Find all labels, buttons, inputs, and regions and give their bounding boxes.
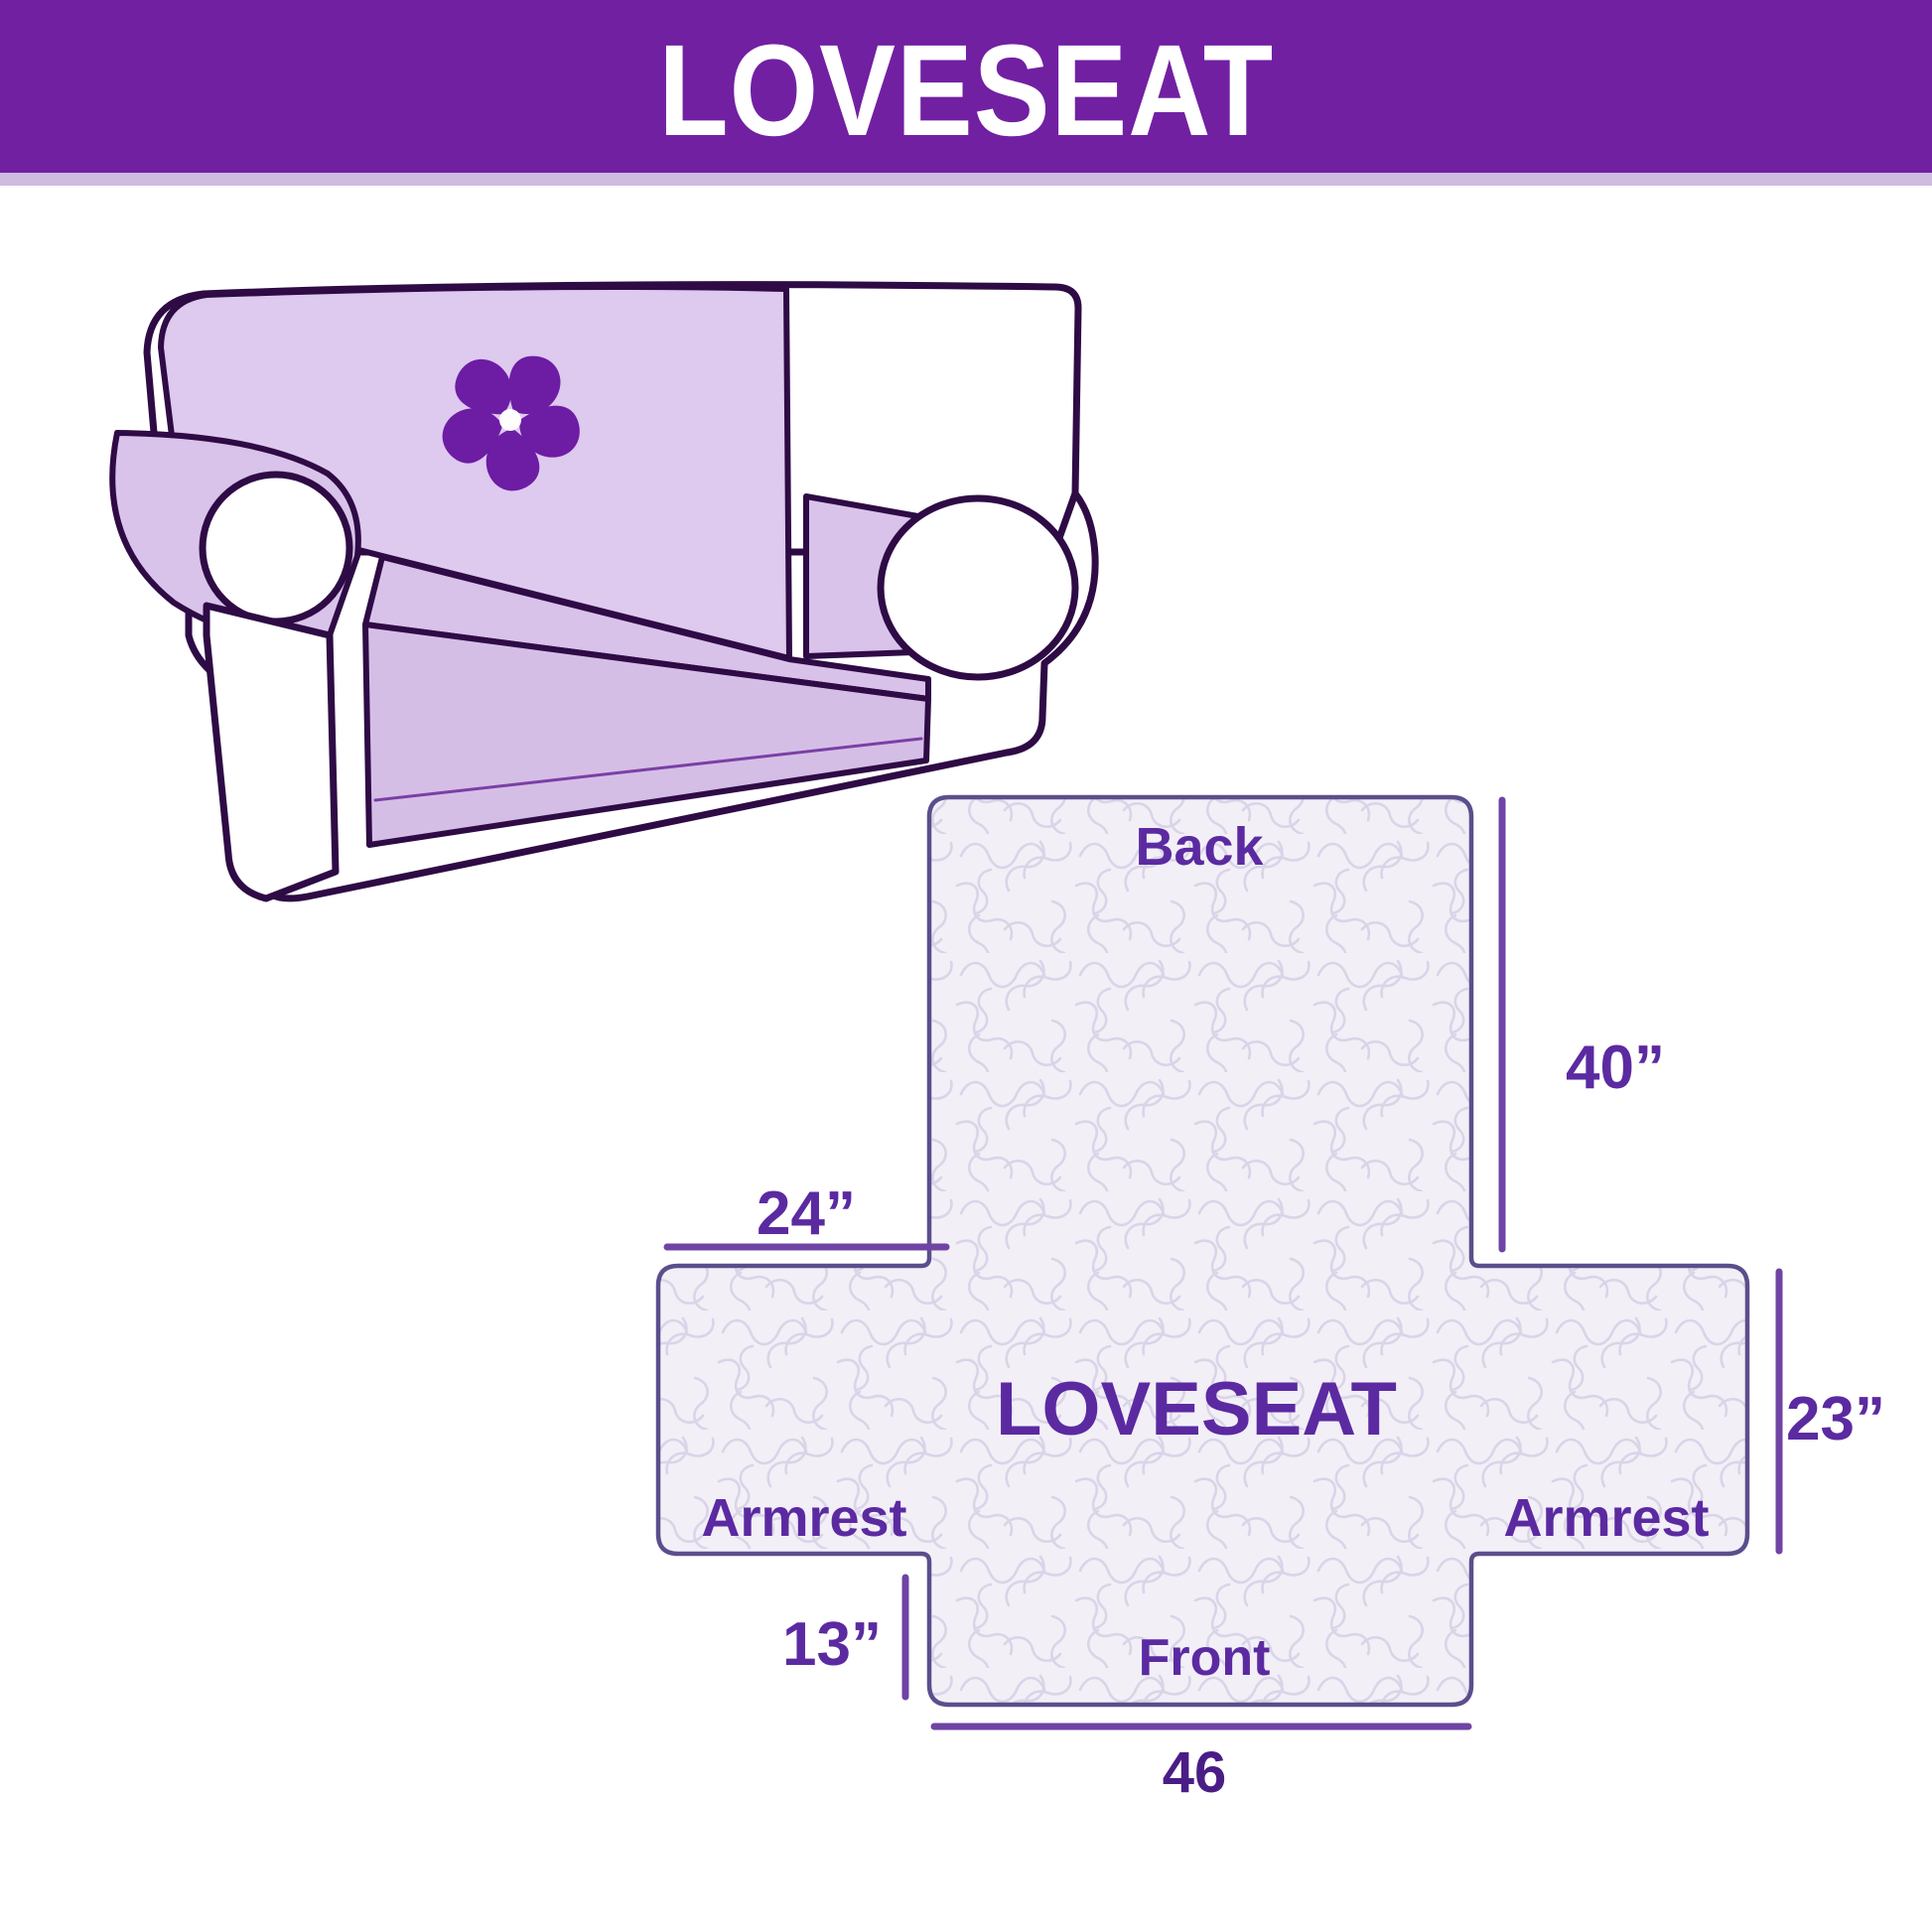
- diagram-front-label: Front: [1139, 1629, 1271, 1687]
- infographic-canvas: LOVESEAT: [0, 0, 1932, 1932]
- cover-dimension-diagram: Back LOVESEAT Armrest Armrest Front 40” …: [658, 797, 1885, 1805]
- sofa-left-arm-roll: [203, 475, 349, 621]
- diagram-back-label: Back: [1135, 817, 1264, 877]
- sofa-right-arm-roll: [881, 498, 1075, 677]
- dim-back-height-value: 40”: [1566, 1034, 1665, 1102]
- dim-front-drop-value: 13”: [782, 1610, 882, 1679]
- dim-armrest-top-width-value: 24”: [757, 1179, 856, 1248]
- diagram-armrest-right-label: Armrest: [1503, 1488, 1709, 1548]
- dim-front-width-value: 46: [1163, 1740, 1227, 1805]
- artwork: Back LOVESEAT Armrest Armrest Front 40” …: [0, 0, 1932, 1932]
- cover-flat-shape: [658, 797, 1747, 1705]
- diagram-product-label: LOVESEAT: [996, 1367, 1397, 1451]
- diagram-armrest-left-label: Armrest: [701, 1488, 906, 1548]
- dim-side-height-value: 23”: [1786, 1385, 1885, 1453]
- sofa-left-arm-front: [207, 606, 336, 898]
